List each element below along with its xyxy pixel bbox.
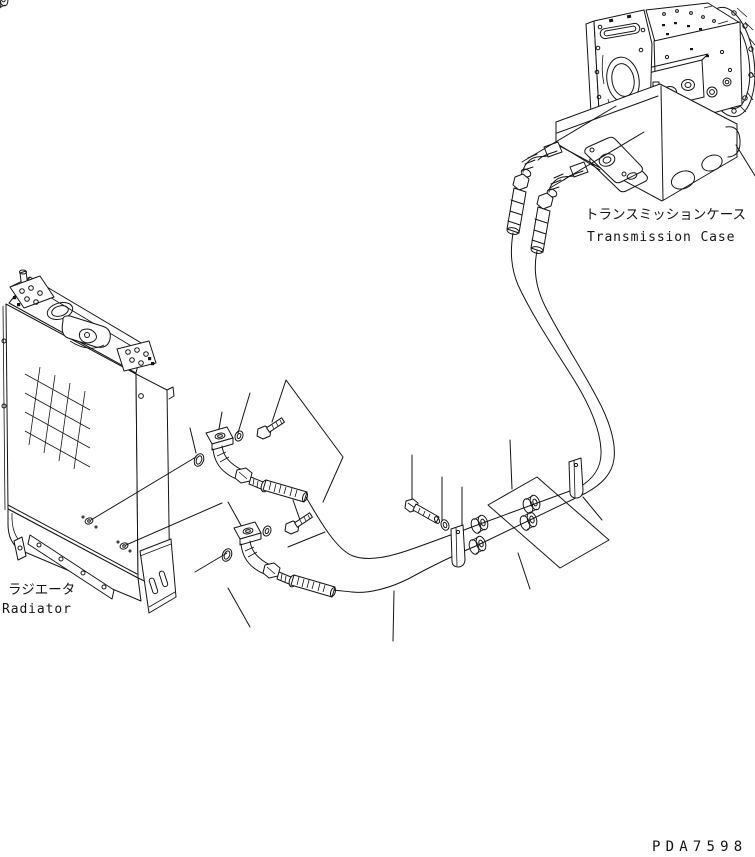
label-radiator-jp: ラジエータ [8,582,75,598]
radiator-drawing [2,270,176,613]
oil-cooler-hose-1 [306,233,601,558]
elbow-fitting [206,427,263,489]
oil-cooler-hose-2 [334,251,614,592]
radiator-foot [140,539,176,613]
oil-cooler-piping-diagram: トランスミッションケース Transmission Case ラジエータ Rad… [0,0,755,857]
o-ring [192,452,205,467]
drawing-number: PDA7598 [652,839,747,855]
parts-diagram-page: トランスミッションケース Transmission Case ラジエータ Rad… [0,0,755,857]
elbow-fitting-group [192,418,308,502]
case-hose-end-fitting [506,174,529,235]
label-transmission-case-en: Transmission Case [587,230,735,245]
hose-grommet [0,0,10,11]
bolt [257,418,284,439]
label-transmission-case-jp: トランスミッションケース [585,207,746,223]
clamp-bolt [405,499,441,524]
clamp-washer [440,519,451,532]
hose-end-fitting [260,479,309,502]
clamp-bracket-left [451,525,465,567]
case-elbow-fitting [520,142,562,178]
clamp-bracket-right [569,458,583,498]
washer [234,430,245,442]
label-radiator-en: Radiator [2,602,72,617]
